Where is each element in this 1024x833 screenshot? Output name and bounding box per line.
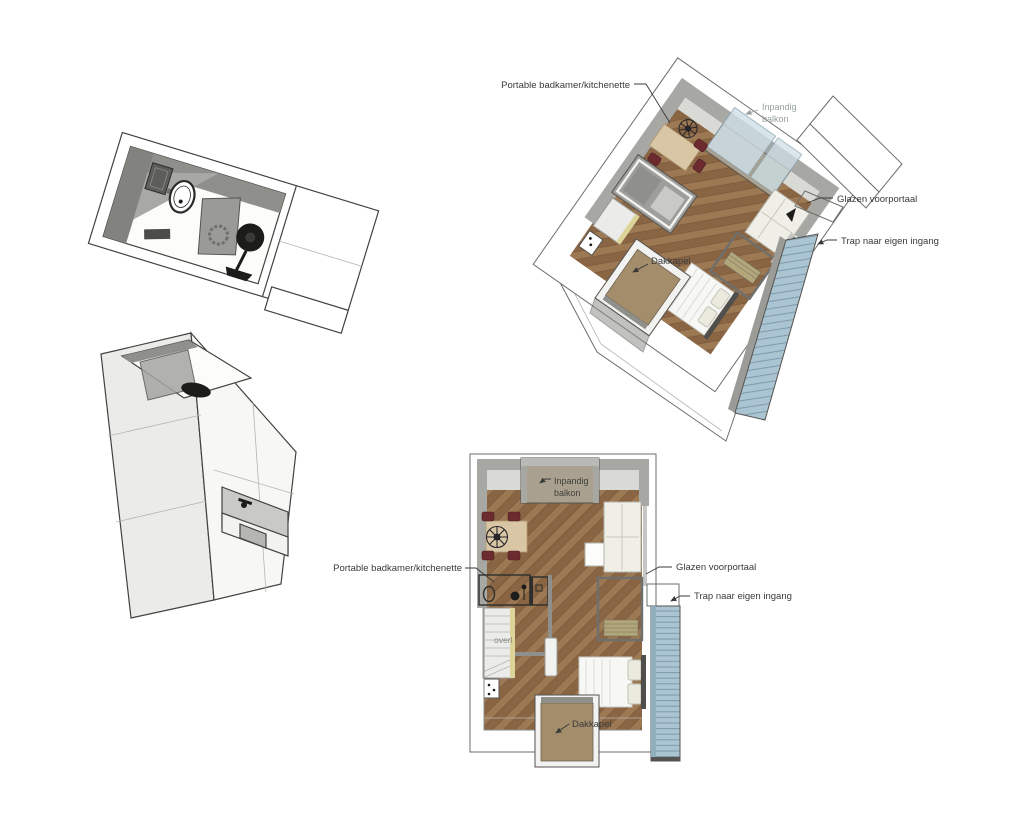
label-trap-axon: Trap naar eigen ingang	[841, 236, 939, 247]
label-dakkapel-plan: Dakkapel	[572, 719, 612, 730]
axon-plan-view	[533, 58, 902, 441]
plan-staircase	[651, 606, 680, 761]
pod-cutaway-view	[85, 132, 379, 333]
plan-chair	[482, 512, 494, 521]
label-inpandig-plan-1: Inpandig	[554, 476, 589, 486]
plan-appliance	[484, 679, 499, 698]
plan-door-leaf	[545, 638, 557, 676]
plan-chandelier-icon	[487, 527, 508, 548]
plan-chair	[508, 512, 520, 521]
label-inpandig-axon-1: Inpandig	[762, 102, 797, 112]
plan-wall-right	[639, 459, 649, 506]
label-inpandig-axon-2: balkon	[762, 114, 789, 124]
architectural-diagram-canvas: Portable badkamer/kitchenette Inpandig b…	[0, 0, 1024, 833]
label-glazen-axon: Glazen voorportaal	[837, 194, 917, 205]
shower-drain-icon	[511, 592, 520, 601]
label-portable-plan: Portable badkamer/kitchenette	[333, 563, 462, 574]
toilet	[144, 229, 170, 239]
label-dakkapel-axon: Dakkapel	[651, 256, 691, 267]
label-glazen-plan: Glazen voorportaal	[676, 562, 756, 573]
leader-line	[671, 596, 690, 601]
label-portable-axon: Portable badkamer/kitchenette	[501, 80, 630, 91]
pod-exterior-view	[101, 333, 296, 618]
plan-dormer	[535, 695, 599, 767]
label-trap-plan: Trap naar eigen ingang	[694, 591, 792, 602]
floorplan-diagram: Portable badkamer/kitchenette Inpandig b…	[0, 0, 1024, 833]
label-inpandig-plan-2: balkon	[554, 488, 581, 498]
plan-chair	[482, 551, 494, 560]
plan-chair	[508, 551, 520, 560]
label-overloop: overl	[494, 635, 513, 645]
